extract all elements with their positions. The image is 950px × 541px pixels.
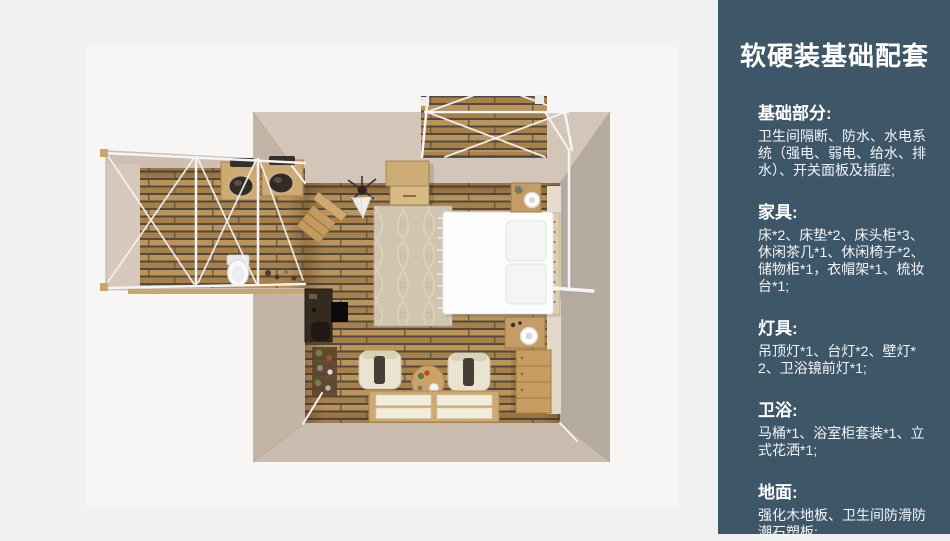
threshold-board: [128, 289, 310, 294]
frame-post-cap: [100, 283, 108, 291]
corner-shelf: [312, 347, 337, 397]
section-body: 吊顶灯*1、台灯*2、壁灯*2、卫浴镜前灯*1;: [758, 343, 936, 377]
sink-basin: [269, 173, 294, 194]
section-body: 床*2、床垫*2、床头柜*3、休闲茶几*1、休闲椅子*2、储物柜*1，衣帽架*1…: [758, 227, 936, 295]
chair-cushion: [463, 358, 474, 386]
dresser: [511, 350, 551, 413]
frame-post-cap: [100, 149, 108, 157]
canopy-post: [535, 95, 544, 104]
section-body: 卫生间隔断、防水、水电系统（强电、弱电、给水、排水）、开关面板及插座;: [758, 128, 936, 179]
canopy-post: [420, 97, 429, 106]
bed: [437, 212, 560, 317]
chair-cushion: [374, 356, 385, 384]
section-furniture: 家具: 床*2、床垫*2、床头柜*3、休闲茶几*1、休闲椅子*2、储物柜*1，衣…: [758, 198, 934, 295]
laptop: [331, 302, 348, 322]
section-body: 马桶*1、浴室柜套装*1、立式花洒*1;: [758, 425, 936, 459]
storage-cabinet: [386, 161, 434, 205]
armchair-right: [448, 353, 490, 391]
section-basics: 基础部分: 卫生间隔断、防水、水电系统（强电、弱电、给水、排水）、开关面板及插座…: [758, 99, 934, 179]
nightstand-top: [511, 183, 541, 212]
section-flooring: 地面: 强化木地板、卫生间防滑防潮石塑板;: [758, 478, 934, 541]
info-sidebar: 软硬装基础配套 基础部分: 卫生间隔断、防水、水电系统（强电、弱电、给水、排水）…: [718, 0, 950, 534]
section-body: 强化木地板、卫生间防滑防潮石塑板;: [758, 507, 936, 541]
bathroom: [100, 149, 310, 295]
nightstand-bottom: [505, 317, 545, 348]
flowers: [418, 373, 424, 379]
armchair-left: [359, 351, 401, 389]
section-bathroom: 卫浴: 马桶*1、浴室柜套装*1、立式花洒*1;: [758, 396, 934, 459]
section-heading: 卫浴:: [758, 396, 934, 421]
section-heading: 基础部分:: [758, 99, 934, 124]
section-heading: 地面:: [758, 478, 934, 503]
section-lighting: 灯具: 吊顶灯*1、台灯*2、壁灯*2、卫浴镜前灯*1;: [758, 314, 934, 377]
sidebar-title: 软硬装基础配套: [740, 36, 934, 73]
pillow: [506, 221, 546, 261]
pillow: [506, 264, 546, 304]
tatami-platform: [369, 391, 499, 422]
desk-chair: [311, 322, 330, 341]
shower-floor: [107, 164, 140, 286]
section-heading: 灯具:: [758, 314, 934, 339]
slide: { "page": { "background": "#f1f1f1" }, "…: [0, 0, 950, 534]
section-heading: 家具:: [758, 198, 934, 223]
floorplan-render: [0, 0, 718, 534]
floorplan-svg: [0, 0, 718, 534]
